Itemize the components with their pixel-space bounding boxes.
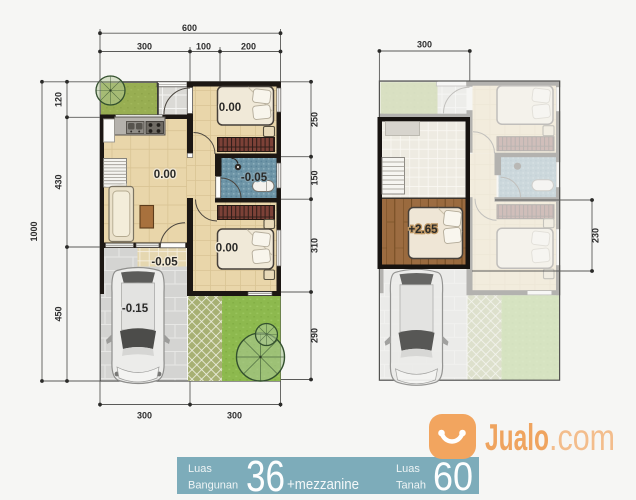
svg-text:450: 450 [54,306,64,321]
svg-text:290: 290 [310,328,320,343]
svg-text:Luas: Luas [188,463,212,475]
svg-text:Tanah: Tanah [396,480,426,492]
svg-text:0.00: 0.00 [219,102,241,114]
svg-text:36: 36 [246,452,285,500]
svg-text:-0.15: -0.15 [122,303,149,315]
svg-text:600: 600 [182,23,197,33]
svg-text:250: 250 [310,112,320,127]
svg-text:1000: 1000 [29,221,39,241]
svg-text:+mezzanine: +mezzanine [287,477,359,493]
svg-text:300: 300 [137,42,152,52]
svg-text:Luas: Luas [396,463,420,475]
svg-text:430: 430 [54,174,64,189]
svg-text:-0.05: -0.05 [151,257,178,269]
svg-text:0.00: 0.00 [154,169,176,181]
svg-text:300: 300 [227,411,242,421]
svg-text:150: 150 [310,170,320,185]
svg-text:310: 310 [310,238,320,253]
svg-text:200: 200 [241,42,256,52]
svg-text:230: 230 [591,228,601,243]
svg-text:Bangunan: Bangunan [188,480,238,492]
svg-text:60: 60 [433,455,473,499]
svg-text:+2.65: +2.65 [408,224,438,236]
svg-text:120: 120 [54,92,64,107]
svg-text:100: 100 [196,42,211,52]
svg-text:-0.05: -0.05 [241,172,268,184]
svg-text:0.00: 0.00 [216,243,238,255]
svg-text:.com: .com [549,417,615,458]
svg-text:300: 300 [417,39,432,49]
svg-text:Jualo: Jualo [485,417,549,458]
svg-text:300: 300 [137,411,152,421]
